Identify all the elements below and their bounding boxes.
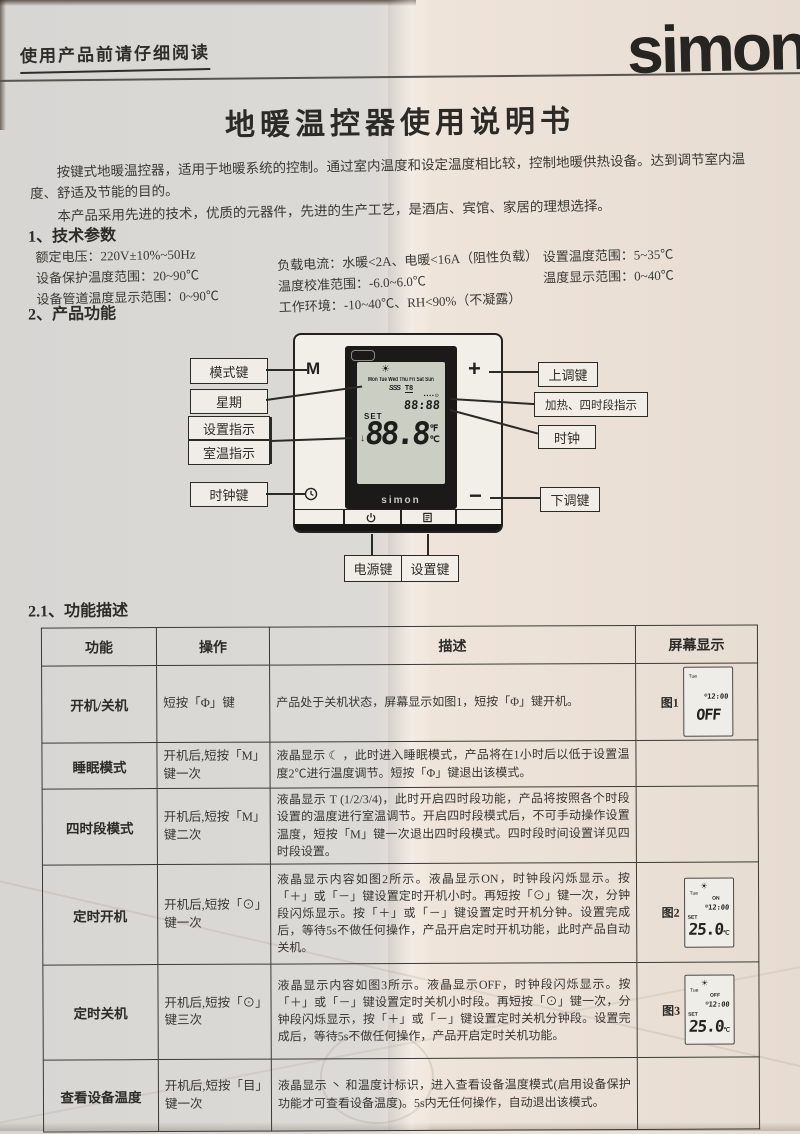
label-clock-key: 时钟键 xyxy=(190,482,268,507)
table-row: 四时段模式 开机后,短按「M」键二次 液晶显示 T (1/2/3/4)，此时开启… xyxy=(42,786,758,865)
label-power-key: 电源键 xyxy=(344,555,402,582)
cell-screen: 图3 ☀ Tue OFF ⊙12:00 SET 25.0℃ xyxy=(637,962,759,1058)
fig-time: ⊙12:00 xyxy=(705,903,730,911)
scan-edge-top xyxy=(0,0,416,6)
function-table: 功能 操作 描述 屏幕显示 开机/关机 短按「Φ」键 产品处于关机状态，屏幕显示… xyxy=(41,624,760,1132)
read-before-use-note: 使用产品前请仔细阅读 xyxy=(20,38,211,74)
button-divider xyxy=(343,510,345,525)
lcd-heat-row: SSS T8 xyxy=(357,385,445,392)
table-row: 定时开机 开机后,短按「⊙」键一次 液晶显示内容如图2所示。液晶显示ON，时钟段… xyxy=(42,862,758,965)
button-divider xyxy=(455,510,457,525)
mode-key-symbol: M xyxy=(306,359,320,379)
fig-unit: ℃ xyxy=(722,929,729,936)
lcd-clock-digits: 88:88 xyxy=(357,399,440,411)
leader-down-key xyxy=(490,497,540,499)
leader-set-key xyxy=(427,534,429,555)
minus-key-symbol: − xyxy=(469,483,482,509)
section-1-heading: 1、技术参数 xyxy=(28,221,116,247)
button-row xyxy=(295,509,501,525)
cell-operation: 开机后,短按「⊙」键一次 xyxy=(157,864,270,964)
cell-description: 液晶显示内容如图3所示。液晶显示OFF，时钟段闪烁显示。按「＋」或「－」键设置定… xyxy=(271,962,637,1059)
param-display-temp-range: 温度显示范围：0~40℃ xyxy=(543,265,674,289)
cell-description: 液晶显示 丶 和温度计标识，进入查看设备温度模式(启用设备保护功能才可查看设备温… xyxy=(271,1057,637,1131)
cell-screen xyxy=(637,1057,759,1130)
fig-time-digits: 12:00 xyxy=(708,903,730,911)
sun-icon: ☀ xyxy=(701,979,708,988)
cell-operation: 开机后,短按「⊙」键三次 xyxy=(158,964,271,1059)
clock-key-icon xyxy=(304,487,318,501)
cell-operation: 开机后,短按「M」键二次 xyxy=(157,788,270,864)
label-mode-key: 模式键 xyxy=(190,358,268,384)
cell-operation: 开机后,短按「目」键一次 xyxy=(158,1059,271,1131)
fig-unit: ℃ xyxy=(722,1027,729,1034)
cell-description: 液晶显示 T (1/2/3/4)，此时开启四时段功能，产品将按照各个时段设置的温… xyxy=(270,786,636,864)
cell-screen: 图1 Tue ⊙12:00 OFF xyxy=(636,663,758,741)
col-header-description: 描述 xyxy=(269,625,635,665)
simon-logo: simon xyxy=(626,8,800,88)
backlight-badge xyxy=(351,350,375,361)
label-set-indicator: 设置指示 xyxy=(188,416,270,440)
power-icon xyxy=(365,512,377,524)
fig-time: ⊙12:00 xyxy=(706,1001,731,1009)
cell-function: 四时段模式 xyxy=(42,789,157,866)
lcd-week-row: Mon Tue Wed Thu Fri Sat Sun xyxy=(367,377,436,383)
fig-day: Tue xyxy=(690,988,698,994)
sun-icon: ☀ xyxy=(381,365,445,375)
fig-big-text: 25.0℃ xyxy=(684,919,734,938)
section-2-1-heading: 2.1、功能描述 xyxy=(28,596,128,621)
param-set-temp-range: 设置温度范围：5~35℃ xyxy=(543,245,674,269)
leader-power-key xyxy=(371,534,373,555)
intro-paragraphs: 按键式地暖温控器，适用于地暖系统的控制。通过室内温度和设定温度相比较，控制地暖供… xyxy=(29,149,772,230)
figure-lcd-1: Tue ⊙12:00 OFF xyxy=(683,667,733,737)
screen-bezel: ☀ Mon Tue Wed Thu Fri Sat Sun SSS T8 ▪▪▪… xyxy=(345,346,457,509)
fig-big-text: OFF xyxy=(683,706,732,724)
figure-label: 图2 xyxy=(662,904,680,921)
label-heat-period-indicator: 加热、四时段指示 xyxy=(534,392,648,417)
cell-operation: 开机后,短按「M」键一次 xyxy=(157,742,270,788)
cell-description: 产品处于关机状态，屏幕显示如图1，短按「Φ」键开机。 xyxy=(270,663,636,742)
label-week: 星期 xyxy=(190,389,268,414)
figure-lcd-3: ☀ Tue OFF ⊙12:00 SET 25.0℃ xyxy=(684,975,734,1045)
lcd-time-block: ▪▪▪▪⊙ 88:88 xyxy=(357,394,440,411)
col-header-function: 功能 xyxy=(41,628,156,667)
cell-function: 睡眠模式 xyxy=(42,743,157,790)
fig-temp: 25.0 xyxy=(687,919,723,938)
cell-screen: 图2 ☀ Tue ON ⊙12:00 SET 25.0℃ xyxy=(636,862,758,963)
cell-description: 液晶显示内容如图2所示。液晶显示ON，时钟段闪烁显示。按「＋」或「－」键设置定时… xyxy=(270,862,636,964)
button-divider xyxy=(400,510,402,525)
fahrenheit-unit: ℉ xyxy=(430,423,440,435)
celsius-unit: ℃ xyxy=(430,434,440,446)
lcd-units: ℉ ℃ xyxy=(430,423,440,446)
label-up-key: 上调键 xyxy=(538,362,598,387)
cell-screen xyxy=(636,786,758,863)
fig-day: Tue xyxy=(690,890,698,896)
cell-function: 定时开机 xyxy=(42,865,157,966)
figure-label: 图3 xyxy=(662,1001,680,1018)
leader-clock-key xyxy=(266,493,305,495)
table-row: 开机/关机 短按「Φ」键 产品处于关机状态，屏幕显示如图1，短按「Φ」键开机。 … xyxy=(42,663,758,743)
label-room-indicator: 室温指示 xyxy=(188,440,270,465)
cell-function: 定时关机 xyxy=(43,965,158,1061)
fig-day: Tue xyxy=(689,674,697,680)
sun-icon: ☀ xyxy=(701,881,708,890)
figure-label: 图1 xyxy=(661,693,679,710)
fig-state: OFF xyxy=(710,993,720,999)
period-segment-label: T8 xyxy=(405,385,413,393)
fig-time-digits: 12:00 xyxy=(709,1001,731,1009)
heating-waves-icon: SSS xyxy=(389,385,400,392)
label-clock: 时钟 xyxy=(538,425,596,449)
fig-time-digits: 12:00 xyxy=(707,693,729,701)
fig-temp: 25.0 xyxy=(688,1017,724,1036)
fig-big-text: 25.0℃ xyxy=(684,1017,734,1036)
cell-function: 开机/关机 xyxy=(42,666,157,744)
table-row: 定时关机 开机后,短按「⊙」键三次 液晶显示内容如图3所示。液晶显示OFF，时钟… xyxy=(43,962,759,1060)
menu-icon xyxy=(422,512,433,523)
lcd-display: ☀ Mon Tue Wed Thu Fri Sat Sun SSS T8 ▪▪▪… xyxy=(357,362,445,484)
col-header-operation: 操作 xyxy=(156,627,269,665)
figure-lcd-2: ☀ Tue ON ⊙12:00 SET 25.0℃ xyxy=(683,877,733,947)
panel-bottom-band xyxy=(295,524,501,531)
page-title: 地暖温控器使用说明书 xyxy=(0,93,800,147)
leader-up-key xyxy=(489,371,538,373)
fig-time: ⊙12:00 xyxy=(704,693,729,701)
lcd-temperature-digits: 88.8 xyxy=(364,421,429,449)
table-row: 查看设备温度 开机后,短按「目」键一次 液晶显示 丶 和温度计标识，进入查看设备… xyxy=(43,1057,759,1132)
tech-params-col2: 负载电流：水暖<2A、电暖<16A（阻性负载） 温度校准范围：-6.0~6.0℃… xyxy=(277,246,540,318)
cell-function: 查看设备温度 xyxy=(43,1060,158,1133)
label-down-key: 下调键 xyxy=(540,487,600,512)
cell-screen xyxy=(636,740,758,787)
fig-state: ON xyxy=(712,895,720,901)
plus-key-symbol: + xyxy=(468,356,481,382)
section-2-heading: 2、产品功能 xyxy=(28,299,116,324)
leader-mode xyxy=(266,369,307,371)
table-header-row: 功能 操作 描述 屏幕显示 xyxy=(41,625,757,666)
cell-description: 液晶显示 ☾ ，此时进入睡眠模式，产品将在1小时后以低于设置温度2℃进行温度调节… xyxy=(270,740,636,788)
label-set-key: 设置键 xyxy=(401,555,459,582)
table-row: 睡眠模式 开机后,短按「M」键一次 液晶显示 ☾ ，此时进入睡眠模式，产品将在1… xyxy=(42,740,758,789)
tech-params-col3: 设置温度范围：5~35℃ 温度显示范围：0~40℃ xyxy=(543,245,674,289)
panel-brand-text: simon xyxy=(345,495,457,506)
lcd-temperature-row: ↓ 88.8 ℉ ℃ xyxy=(360,421,445,449)
cell-operation: 短按「Φ」键 xyxy=(157,665,270,742)
col-header-screen: 屏幕显示 xyxy=(635,625,757,664)
